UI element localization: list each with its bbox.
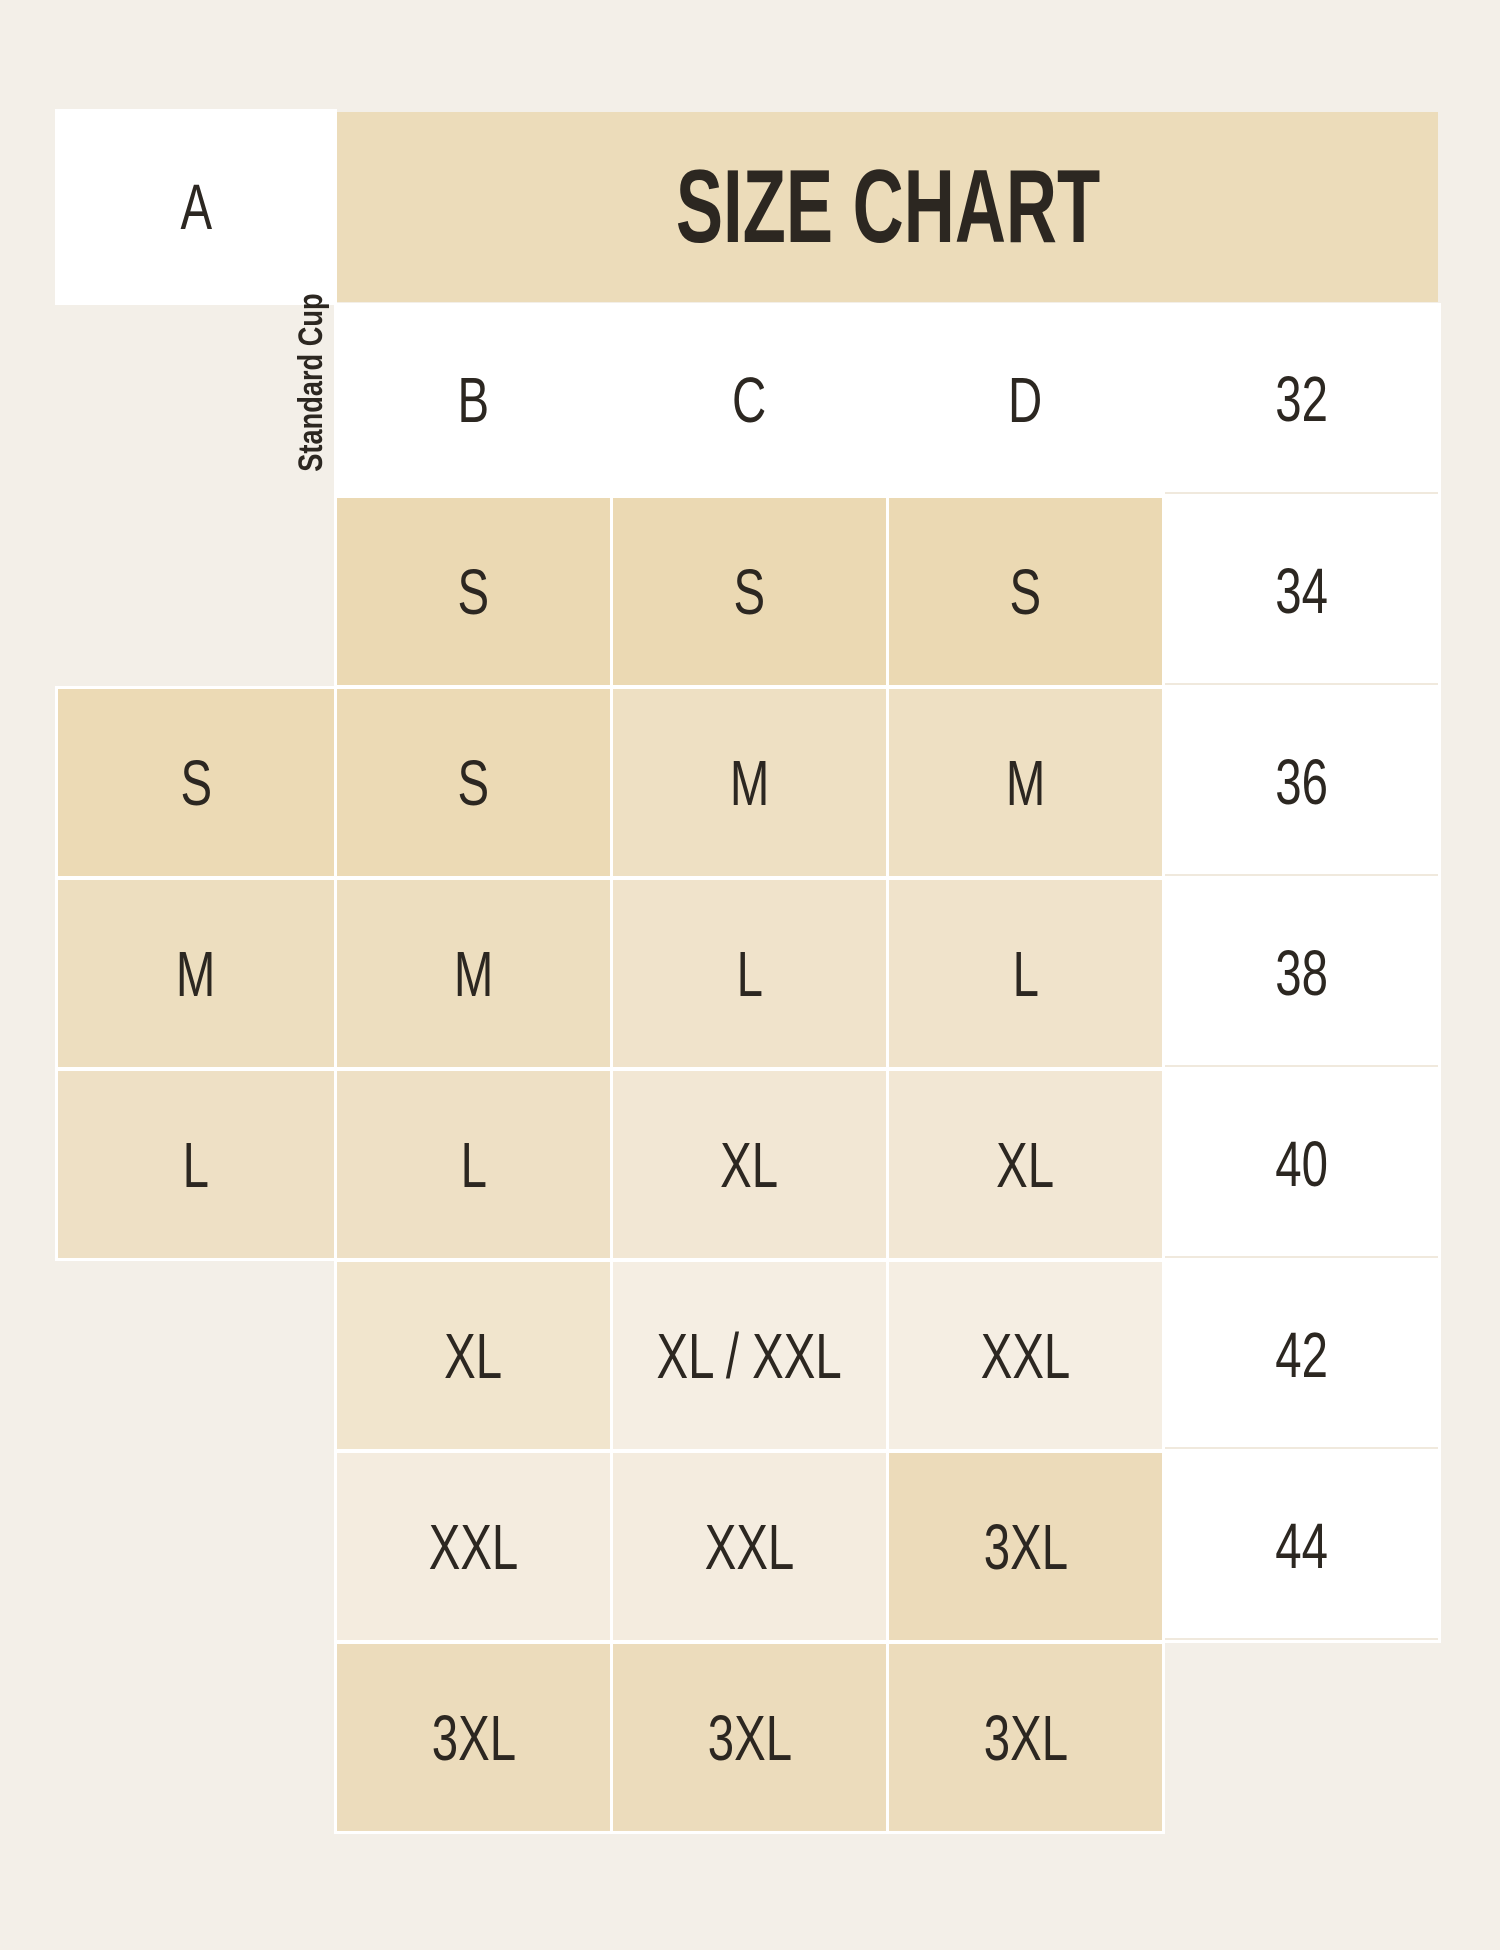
size-cell-44-d: 3XL bbox=[889, 1644, 1162, 1831]
size-cell-36-c: L bbox=[613, 880, 886, 1067]
standard-cup-strip: Standard Cup bbox=[290, 306, 332, 494]
size-cell-32-a bbox=[58, 498, 334, 685]
size-cell-38-a: L bbox=[58, 1071, 334, 1258]
column-header-b: B bbox=[337, 306, 610, 494]
size-cell-40-c: XL / XXL bbox=[613, 1262, 886, 1449]
row-label-44: 44 bbox=[1165, 1453, 1438, 1640]
size-chart-page: SIZE CHART Standard Cup A B C D 32 S S S… bbox=[0, 0, 1500, 1950]
size-cell-32-b: S bbox=[337, 498, 610, 685]
row-label-38: 38 bbox=[1165, 880, 1438, 1067]
size-cell-34-c: M bbox=[613, 689, 886, 876]
title-band: SIZE CHART bbox=[337, 112, 1438, 302]
standard-cup-axis-cell: Standard Cup bbox=[58, 306, 334, 494]
size-cell-38-c: XL bbox=[613, 1071, 886, 1258]
row-label-32: 32 bbox=[1165, 306, 1438, 494]
column-header-c: C bbox=[613, 306, 886, 494]
size-cell-34-b: S bbox=[337, 689, 610, 876]
size-cell-42-a bbox=[58, 1453, 334, 1640]
size-cell-44-b: 3XL bbox=[337, 1644, 610, 1831]
size-cell-36-b: M bbox=[337, 880, 610, 1067]
size-cell-42-b: XXL bbox=[337, 1453, 610, 1640]
size-cell-34-a: S bbox=[58, 689, 334, 876]
size-cell-40-b: XL bbox=[337, 1262, 610, 1449]
row-label-34: 34 bbox=[1165, 498, 1438, 685]
column-header-d: D bbox=[889, 306, 1162, 494]
column-header-a: A bbox=[58, 112, 334, 302]
size-cell-40-a bbox=[58, 1262, 334, 1449]
row-label-36: 36 bbox=[1165, 689, 1438, 876]
size-chart-table: SIZE CHART Standard Cup A B C D 32 S S S… bbox=[58, 112, 1438, 1831]
size-cell-40-d: XXL bbox=[889, 1262, 1162, 1449]
size-cell-38-b: L bbox=[337, 1071, 610, 1258]
size-cell-32-c: S bbox=[613, 498, 886, 685]
size-cell-36-a: M bbox=[58, 880, 334, 1067]
row-label-40: 40 bbox=[1165, 1071, 1438, 1258]
size-cell-44-a bbox=[58, 1644, 334, 1831]
size-cell-42-d: 3XL bbox=[889, 1453, 1162, 1640]
row-label-42: 42 bbox=[1165, 1262, 1438, 1449]
size-cell-38-d: XL bbox=[889, 1071, 1162, 1258]
standard-cup-label: Standard Cup bbox=[290, 306, 332, 494]
size-cell-44-c: 3XL bbox=[613, 1644, 886, 1831]
size-cell-32-d: S bbox=[889, 498, 1162, 685]
size-cell-42-c: XXL bbox=[613, 1453, 886, 1640]
size-cell-34-d: M bbox=[889, 689, 1162, 876]
size-cell-36-d: L bbox=[889, 880, 1162, 1067]
page-title: SIZE CHART bbox=[675, 148, 1099, 267]
